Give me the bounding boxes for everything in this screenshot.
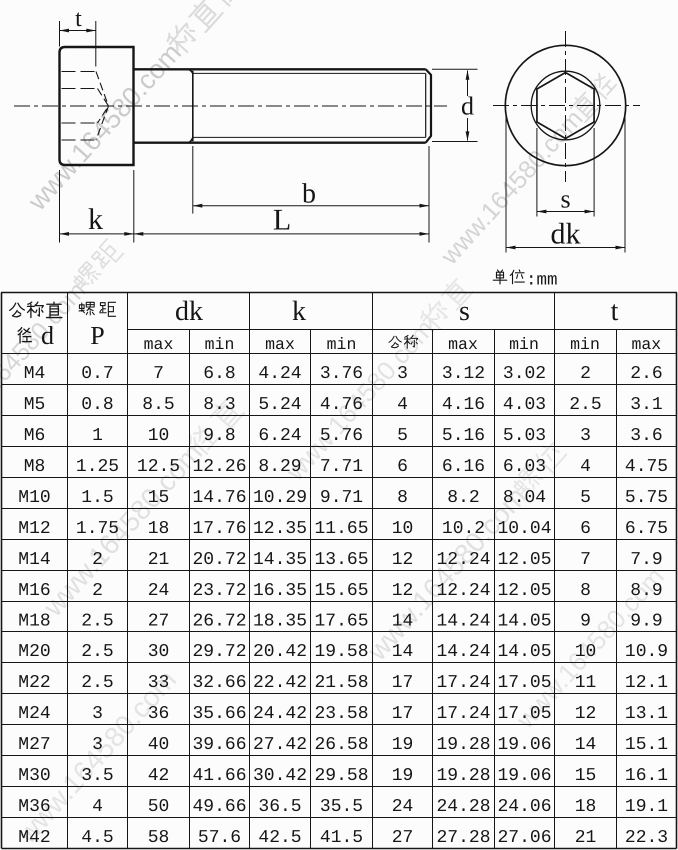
svg-text:M16: M16 (18, 581, 50, 601)
svg-text:41.5: 41.5 (320, 828, 363, 848)
svg-text:9.8: 9.8 (203, 426, 235, 446)
svg-text:M20: M20 (18, 642, 50, 662)
svg-text:1.75: 1.75 (76, 519, 119, 539)
svg-text:19.06: 19.06 (497, 735, 551, 755)
svg-text:4: 4 (580, 457, 591, 477)
svg-text:19: 19 (392, 766, 414, 786)
svg-text:6.75: 6.75 (625, 519, 668, 539)
svg-text:18: 18 (575, 797, 597, 817)
svg-text:32.66: 32.66 (192, 673, 246, 693)
svg-text:3.12: 3.12 (442, 364, 485, 384)
svg-text:6: 6 (580, 519, 591, 539)
svg-text::mm: :mm (526, 271, 558, 291)
svg-text:2.6: 2.6 (630, 364, 662, 384)
svg-text:17.24: 17.24 (436, 704, 490, 724)
svg-text:M14: M14 (18, 550, 50, 570)
svg-text:49.66: 49.66 (192, 797, 246, 817)
svg-text:max: max (448, 335, 478, 354)
svg-text:50: 50 (148, 797, 170, 817)
svg-text:M6: M6 (24, 426, 46, 446)
svg-text:30.42: 30.42 (253, 766, 307, 786)
svg-text:9: 9 (580, 612, 591, 632)
svg-text:3.6: 3.6 (630, 426, 662, 446)
svg-text:19.58: 19.58 (314, 642, 368, 662)
svg-text:12.05: 12.05 (497, 550, 551, 570)
svg-text:19.28: 19.28 (436, 735, 490, 755)
svg-text:6.16: 6.16 (442, 457, 485, 477)
svg-text:36.5: 36.5 (258, 797, 301, 817)
svg-text:23.72: 23.72 (192, 581, 246, 601)
svg-text:2: 2 (92, 581, 103, 601)
svg-text:10.9: 10.9 (625, 642, 668, 662)
svg-text:27.42: 27.42 (253, 735, 307, 755)
svg-text:2.5: 2.5 (81, 673, 113, 693)
svg-text:k: k (88, 203, 103, 236)
svg-text:29.72: 29.72 (192, 642, 246, 662)
svg-text:27.28: 27.28 (436, 828, 490, 848)
svg-text:21: 21 (575, 828, 597, 848)
svg-text:24.06: 24.06 (497, 797, 551, 817)
svg-text:18.35: 18.35 (253, 612, 307, 632)
svg-text:6: 6 (397, 457, 408, 477)
svg-text:17.65: 17.65 (314, 612, 368, 632)
svg-text:dk: dk (551, 218, 581, 251)
svg-text:35.66: 35.66 (192, 704, 246, 724)
svg-text:4: 4 (397, 395, 408, 415)
svg-text:17.24: 17.24 (436, 673, 490, 693)
svg-text:7: 7 (153, 364, 164, 384)
svg-text:24.28: 24.28 (436, 797, 490, 817)
svg-text:dk: dk (175, 296, 203, 327)
svg-text:12.26: 12.26 (192, 457, 246, 477)
svg-text:29.58: 29.58 (314, 766, 368, 786)
svg-text:www.164580.com: www.164580.com (0, 277, 91, 443)
svg-text:12.5: 12.5 (137, 457, 180, 477)
svg-text:12.24: 12.24 (436, 550, 490, 570)
svg-text:22.3: 22.3 (625, 828, 668, 848)
svg-text:17: 17 (392, 704, 414, 724)
svg-text:12.05: 12.05 (497, 581, 551, 601)
svg-text:5.76: 5.76 (320, 426, 363, 446)
svg-text:5.24: 5.24 (258, 395, 301, 415)
svg-text:10.2: 10.2 (442, 519, 485, 539)
svg-text:M5: M5 (24, 395, 46, 415)
svg-text:1.5: 1.5 (81, 488, 113, 508)
svg-text:www.164580.com: www.164580.com (37, 437, 209, 623)
svg-text:k: k (292, 296, 306, 327)
svg-text:58: 58 (148, 828, 170, 848)
svg-text:L: L (273, 204, 291, 237)
svg-text:7: 7 (580, 550, 591, 570)
svg-text:4.03: 4.03 (503, 395, 546, 415)
svg-text:2.5: 2.5 (81, 612, 113, 632)
svg-text:2.5: 2.5 (569, 395, 601, 415)
svg-text:7.71: 7.71 (320, 457, 363, 477)
svg-text:16.35: 16.35 (253, 581, 307, 601)
svg-text:max: max (631, 335, 661, 354)
svg-text:t: t (611, 296, 619, 327)
svg-text:26.58: 26.58 (314, 735, 368, 755)
svg-text:19.28: 19.28 (436, 766, 490, 786)
svg-text:6.24: 6.24 (258, 426, 301, 446)
svg-text:d: d (461, 92, 474, 121)
svg-text:d: d (41, 321, 54, 350)
svg-text:16.1: 16.1 (625, 766, 668, 786)
svg-text:7.9: 7.9 (630, 550, 662, 570)
svg-text:10.04: 10.04 (497, 519, 551, 539)
svg-text:30: 30 (148, 642, 170, 662)
svg-text:36: 36 (148, 704, 170, 724)
svg-text:s: s (560, 185, 570, 214)
svg-text:8.3: 8.3 (203, 395, 235, 415)
svg-text:8.5: 8.5 (142, 395, 174, 415)
svg-text:2: 2 (92, 550, 103, 570)
svg-text:1: 1 (92, 426, 103, 446)
svg-text:42: 42 (148, 766, 170, 786)
svg-text:14.05: 14.05 (497, 612, 551, 632)
svg-text:10: 10 (392, 519, 414, 539)
svg-text:2.5: 2.5 (81, 642, 113, 662)
svg-text:M18: M18 (18, 612, 50, 632)
svg-text:8.04: 8.04 (503, 488, 546, 508)
svg-text:3: 3 (92, 735, 103, 755)
svg-text:M24: M24 (18, 704, 50, 724)
svg-text:9.9: 9.9 (630, 612, 662, 632)
svg-text:39.66: 39.66 (192, 735, 246, 755)
svg-text:min: min (509, 335, 539, 354)
svg-text:14: 14 (575, 735, 597, 755)
svg-text:17: 17 (392, 673, 414, 693)
svg-text:M30: M30 (18, 766, 50, 786)
svg-text:17.05: 17.05 (497, 673, 551, 693)
svg-text:www.164580.com: www.164580.com (21, 38, 187, 217)
svg-text:24: 24 (148, 581, 170, 601)
svg-text:3: 3 (397, 364, 408, 384)
svg-text:3.5: 3.5 (81, 766, 113, 786)
svg-text:3.76: 3.76 (320, 364, 363, 384)
svg-text:24.42: 24.42 (253, 704, 307, 724)
svg-text:5.03: 5.03 (503, 426, 546, 446)
svg-text:35.5: 35.5 (320, 797, 363, 817)
svg-text:15.1: 15.1 (625, 735, 668, 755)
svg-text:8: 8 (580, 581, 591, 601)
svg-text:10.29: 10.29 (253, 488, 307, 508)
svg-text:4.76: 4.76 (320, 395, 363, 415)
svg-text:13.1: 13.1 (625, 704, 668, 724)
svg-text:M4: M4 (24, 364, 46, 384)
svg-text:min: min (205, 335, 235, 354)
svg-text:max: max (144, 335, 174, 354)
svg-text:11.65: 11.65 (314, 519, 368, 539)
svg-text:5: 5 (580, 488, 591, 508)
svg-text:10: 10 (148, 426, 170, 446)
svg-text:5.16: 5.16 (442, 426, 485, 446)
svg-text:3.02: 3.02 (503, 364, 546, 384)
svg-text:17.05: 17.05 (497, 704, 551, 724)
svg-text:41.66: 41.66 (192, 766, 246, 786)
svg-text:M8: M8 (24, 457, 46, 477)
svg-text:3: 3 (580, 426, 591, 446)
svg-text:19.06: 19.06 (497, 766, 551, 786)
svg-text:3: 3 (92, 704, 103, 724)
svg-text:1.25: 1.25 (76, 457, 119, 477)
svg-text:26.72: 26.72 (192, 612, 246, 632)
svg-text:b: b (302, 179, 316, 210)
svg-text:42.5: 42.5 (258, 828, 301, 848)
svg-text:0.8: 0.8 (81, 395, 113, 415)
svg-text:15.65: 15.65 (314, 581, 368, 601)
svg-text:2: 2 (580, 364, 591, 384)
svg-text:6.8: 6.8 (203, 364, 235, 384)
svg-text:0.7: 0.7 (81, 364, 113, 384)
svg-text:11: 11 (575, 673, 597, 693)
svg-text:57.6: 57.6 (198, 828, 241, 848)
svg-text:20.42: 20.42 (253, 642, 307, 662)
svg-text:min: min (570, 335, 600, 354)
svg-text:13.65: 13.65 (314, 550, 368, 570)
svg-text:min: min (327, 335, 357, 354)
svg-text:t: t (75, 6, 82, 32)
svg-text:9.71: 9.71 (320, 488, 363, 508)
svg-text:8.9: 8.9 (630, 581, 662, 601)
svg-text:14.24: 14.24 (436, 642, 490, 662)
svg-text:12.35: 12.35 (253, 519, 307, 539)
svg-text:4.5: 4.5 (81, 828, 113, 848)
svg-text:10: 10 (575, 642, 597, 662)
svg-text:23.58: 23.58 (314, 704, 368, 724)
svg-text:14: 14 (392, 642, 414, 662)
svg-text:14: 14 (392, 612, 414, 632)
svg-text:M10: M10 (18, 488, 50, 508)
svg-text:24: 24 (392, 797, 414, 817)
svg-text:12: 12 (575, 704, 597, 724)
svg-text:M12: M12 (18, 519, 50, 539)
svg-text:M22: M22 (18, 673, 50, 693)
svg-text:8.2: 8.2 (447, 488, 479, 508)
svg-text:5.75: 5.75 (625, 488, 668, 508)
svg-text:15: 15 (148, 488, 170, 508)
svg-text:3.1: 3.1 (630, 395, 662, 415)
svg-text:27.06: 27.06 (497, 828, 551, 848)
svg-text:19.1: 19.1 (625, 797, 668, 817)
svg-text:33: 33 (148, 673, 170, 693)
svg-text:15: 15 (575, 766, 597, 786)
svg-text:12.1: 12.1 (625, 673, 668, 693)
svg-text:8: 8 (397, 488, 408, 508)
svg-text:21: 21 (148, 550, 170, 570)
svg-text:M27: M27 (18, 735, 50, 755)
svg-text:20.72: 20.72 (192, 550, 246, 570)
svg-text:12: 12 (392, 581, 414, 601)
svg-text:M36: M36 (18, 797, 50, 817)
svg-text:4.75: 4.75 (625, 457, 668, 477)
svg-text:22.42: 22.42 (253, 673, 307, 693)
svg-text:18: 18 (148, 519, 170, 539)
svg-text:12: 12 (392, 550, 414, 570)
svg-text:19: 19 (392, 735, 414, 755)
svg-text:14.35: 14.35 (253, 550, 307, 570)
svg-text:27: 27 (392, 828, 414, 848)
svg-text:14.76: 14.76 (192, 488, 246, 508)
svg-text:4.24: 4.24 (258, 364, 301, 384)
svg-text:max: max (265, 335, 295, 354)
svg-text:5: 5 (397, 426, 408, 446)
svg-text:6.03: 6.03 (503, 457, 546, 477)
svg-text:8.29: 8.29 (258, 457, 301, 477)
svg-text:4: 4 (92, 797, 103, 817)
svg-text:17.76: 17.76 (192, 519, 246, 539)
svg-text:14.24: 14.24 (436, 612, 490, 632)
svg-text:40: 40 (148, 735, 170, 755)
svg-text:M42: M42 (18, 828, 50, 848)
svg-text:s: s (459, 296, 470, 327)
svg-text:21.58: 21.58 (314, 673, 368, 693)
svg-text:4.16: 4.16 (442, 395, 485, 415)
svg-text:P: P (90, 321, 104, 350)
svg-text:27: 27 (148, 612, 170, 632)
svg-text:12.24: 12.24 (436, 581, 490, 601)
svg-text:14.05: 14.05 (497, 642, 551, 662)
